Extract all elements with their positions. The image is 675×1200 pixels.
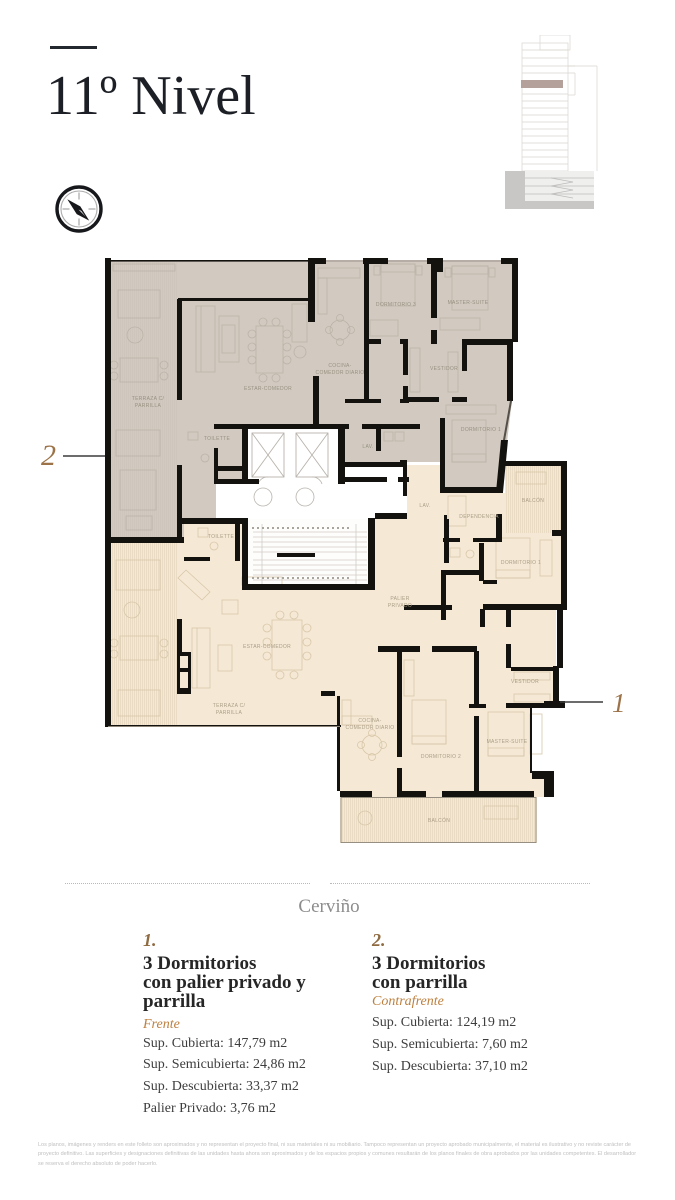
svg-text:ESTAR-COMEDOR: ESTAR-COMEDOR (243, 644, 291, 650)
svg-text:DEPENDENCIA: DEPENDENCIA (459, 514, 499, 520)
svg-text:DORMITORIO 3: DORMITORIO 3 (376, 302, 416, 308)
svg-text:TOILETTE: TOILETTE (204, 436, 231, 442)
svg-text:BALCÓN: BALCÓN (428, 817, 450, 824)
svg-text:2: 2 (41, 439, 56, 472)
svg-text:MASTER-SUITE: MASTER-SUITE (487, 739, 528, 745)
svg-text:DORMITORIO 2: DORMITORIO 2 (421, 754, 461, 760)
svg-text:DORMITORIO 1: DORMITORIO 1 (501, 560, 541, 566)
svg-text:PARRILLA: PARRILLA (135, 403, 162, 409)
svg-text:COMEDOR DIARIO: COMEDOR DIARIO (316, 370, 365, 376)
svg-text:COMEDOR DIARIO: COMEDOR DIARIO (346, 725, 395, 731)
svg-text:TERRAZA C/: TERRAZA C/ (213, 703, 246, 709)
svg-text:COCINA-: COCINA- (358, 718, 381, 724)
svg-text:BALCÓN: BALCÓN (522, 497, 544, 504)
svg-text:ESTAR-COMEDOR: ESTAR-COMEDOR (244, 386, 292, 392)
svg-text:TERRAZA C/: TERRAZA C/ (132, 396, 165, 402)
svg-text:TOILETTE: TOILETTE (208, 534, 235, 540)
svg-text:LAV.: LAV. (419, 503, 430, 509)
svg-text:DORMITORIO 1: DORMITORIO 1 (461, 427, 501, 433)
svg-text:PRIVADO: PRIVADO (388, 603, 412, 609)
svg-text:1: 1 (612, 688, 626, 718)
svg-text:VESTIDOR: VESTIDOR (430, 366, 458, 372)
svg-text:PALIER: PALIER (390, 596, 409, 602)
svg-text:LAV.: LAV. (362, 444, 373, 450)
svg-text:PARRILLA: PARRILLA (216, 710, 243, 716)
svg-text:VESTIDOR: VESTIDOR (511, 679, 539, 685)
svg-text:COCINA-: COCINA- (328, 363, 351, 369)
svg-text:MASTER-SUITE: MASTER-SUITE (448, 300, 489, 306)
